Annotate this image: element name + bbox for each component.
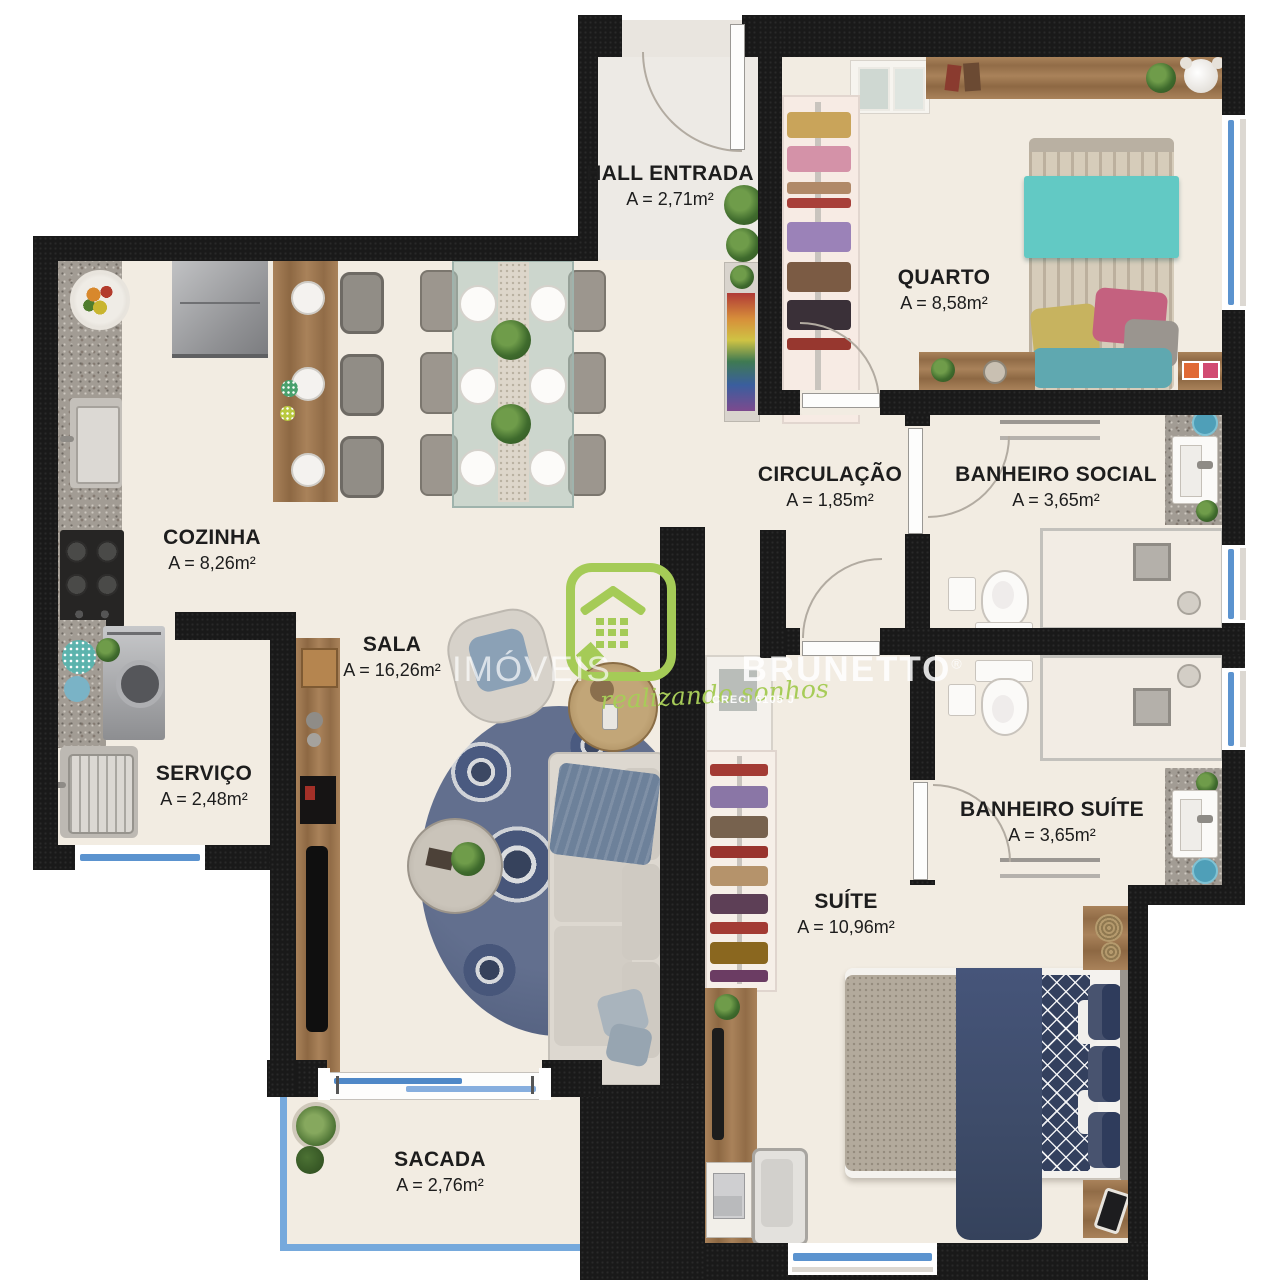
bar-stool [340,272,384,334]
hall-cabinet [724,262,760,422]
decor-sculpture [306,712,323,729]
pillow-navy [1088,984,1122,1040]
tv [306,846,328,1032]
towel-rack [1000,420,1100,440]
entry-door-leaf [730,24,745,150]
plate [291,281,325,315]
window [1222,668,1248,750]
wall [742,15,1245,57]
suite-tv [712,1028,724,1140]
clothes [787,262,851,292]
wall [1128,885,1148,1262]
clothes [710,970,768,982]
sliding-door [327,1072,544,1100]
label-quarto: QUARTO A = 8,58m² [898,266,990,314]
room-area: A = 1,85m² [758,490,902,511]
bed-blanket-gray [845,975,960,1171]
toilet-bowl [981,570,1029,628]
throw-blanket [549,762,661,866]
sofa [548,752,667,1086]
plant [296,1146,324,1174]
window [75,845,205,870]
plant [1196,500,1218,522]
room-area: A = 2,71m² [586,189,754,210]
door-jamb [539,1068,551,1100]
label-servico: SERVIÇO A = 2,48m² [156,762,252,810]
plate [459,285,497,323]
plant [491,404,531,444]
window [1222,115,1248,310]
bowl [280,406,295,421]
sink [1172,436,1218,504]
fruit-bowl [70,270,130,330]
room-name: COZINHA [163,526,261,550]
pillow-navy [1088,1112,1122,1168]
door-leaf [908,428,923,534]
wall [542,1060,602,1097]
room-area: A = 10,96m² [797,917,895,938]
bed-runner-teal [1024,176,1179,258]
shower-head [1133,688,1171,726]
room-name: BANHEIRO SOCIAL [955,463,1157,487]
stove-cooktop [60,530,124,628]
clothes [710,786,768,808]
clothes [787,198,851,208]
rattan-decor [1095,914,1123,942]
floor-plan: HALL ENTRADA A = 2,71m² QUARTO A = 8,58m… [0,0,1280,1280]
wall [758,15,782,415]
clothes [710,764,768,776]
bath-bin [948,577,976,611]
shower-drain [1177,664,1201,688]
pillow [605,1022,654,1068]
clothes [710,942,768,964]
sink [1172,790,1218,858]
room-area: A = 2,76m² [394,1175,486,1196]
clothes [710,866,768,886]
pillow-teal [1032,348,1172,388]
clothes [710,816,768,838]
plate [529,367,567,405]
room-name: HALL ENTRADA [586,162,754,186]
window [1222,545,1248,623]
label-banheiro-suite: BANHEIRO SUÍTE A = 3,65m² [960,798,1144,846]
wall [33,236,598,261]
bar-stool [340,436,384,498]
wall [578,15,622,57]
label-banheiro-social: BANHEIRO SOCIAL A = 3,65m² [955,463,1157,511]
kitchen-sink [70,398,122,488]
wall [760,530,786,658]
clock [983,360,1007,384]
clothes [710,894,768,914]
table-runner [498,262,529,502]
balcony-railing [280,1244,580,1251]
wall [580,1085,705,1280]
nightstand [1178,352,1222,390]
book [963,62,981,91]
aloe-plant [292,1102,340,1150]
registered-mark: ® [951,655,963,671]
pillow-navy [1088,1046,1122,1102]
bedroom-desk [919,352,1035,390]
room-name: BANHEIRO SUÍTE [960,798,1144,822]
bowl [281,380,298,397]
room-name: CIRCULAÇÃO [758,463,902,487]
room-name: SERVIÇO [156,762,252,786]
suite-desk [706,1162,752,1238]
plate [529,285,567,323]
plant [726,228,760,262]
clothes [787,112,851,138]
clothes [710,922,768,934]
picture-shelf [850,60,930,114]
label-circulacao: CIRCULAÇÃO A = 1,85m² [758,463,902,511]
laundry-tank [60,746,138,838]
plate [291,453,325,487]
frame [1182,361,1201,380]
frame [1201,361,1220,380]
clothes [787,182,851,194]
artwork [727,293,755,411]
door-leaf [802,393,880,408]
suite-clothes-rack [705,750,777,992]
room-name: SALA [343,633,441,657]
rattan-decor [1101,942,1121,962]
label-sacada: SACADA A = 2,76m² [394,1148,486,1196]
room-name: QUARTO [898,266,990,290]
plant [491,320,531,360]
room-name: SUÍTE [797,890,895,914]
room-area: A = 8,26m² [163,553,261,574]
room-area: A = 3,65m² [955,490,1157,511]
room-area: A = 16,26m² [343,660,441,681]
book [944,64,961,92]
plate [459,449,497,487]
bar-stool [340,354,384,416]
brand-imoveis: IMÓVEIS [452,650,612,689]
shower-drain [1177,591,1201,615]
wall-shelf [926,57,1222,99]
railing-edge [276,1251,582,1255]
phone [1093,1187,1131,1235]
label-suite: SUÍTE A = 10,96m² [797,890,895,938]
balcony-railing [280,1097,287,1255]
decor-round [64,676,90,702]
decor-poster [300,776,336,824]
decor-round [62,640,96,674]
door-jamb [318,1068,330,1100]
vessel-sink [1192,858,1218,884]
window [788,1243,937,1275]
bed-drape-navy [956,968,1042,1240]
decor-board [301,648,338,688]
plate [459,367,497,405]
wall [33,236,58,870]
plant [96,638,120,662]
toilet-bowl [981,678,1029,736]
room-name: SACADA [394,1148,486,1172]
clothes [710,846,768,858]
label-cozinha: COZINHA A = 8,26m² [163,526,261,574]
room-area: A = 3,65m² [960,825,1144,846]
shower-suite [1040,655,1224,761]
wall [270,612,296,1097]
door-leaf [913,782,928,880]
faucet [60,436,74,442]
towel-rack [1000,858,1100,878]
coffee-table [407,818,503,914]
refrigerator [172,258,268,358]
shower-social [1040,528,1224,630]
desk-chair [752,1148,808,1246]
brand-license: CRECI 6105 J [712,694,795,706]
label-sala: SALA A = 16,26m² [343,633,441,681]
wall [1128,885,1245,905]
shower-head [1133,543,1171,581]
room-area: A = 8,58m² [898,293,990,314]
plate [529,449,567,487]
clothes [787,146,851,172]
logo-window-grid [596,618,632,648]
label-hall: HALL ENTRADA A = 2,71m² [586,162,754,210]
room-area: A = 2,48m² [156,789,252,810]
clothes [787,222,851,252]
decor-sculpture [307,733,321,747]
